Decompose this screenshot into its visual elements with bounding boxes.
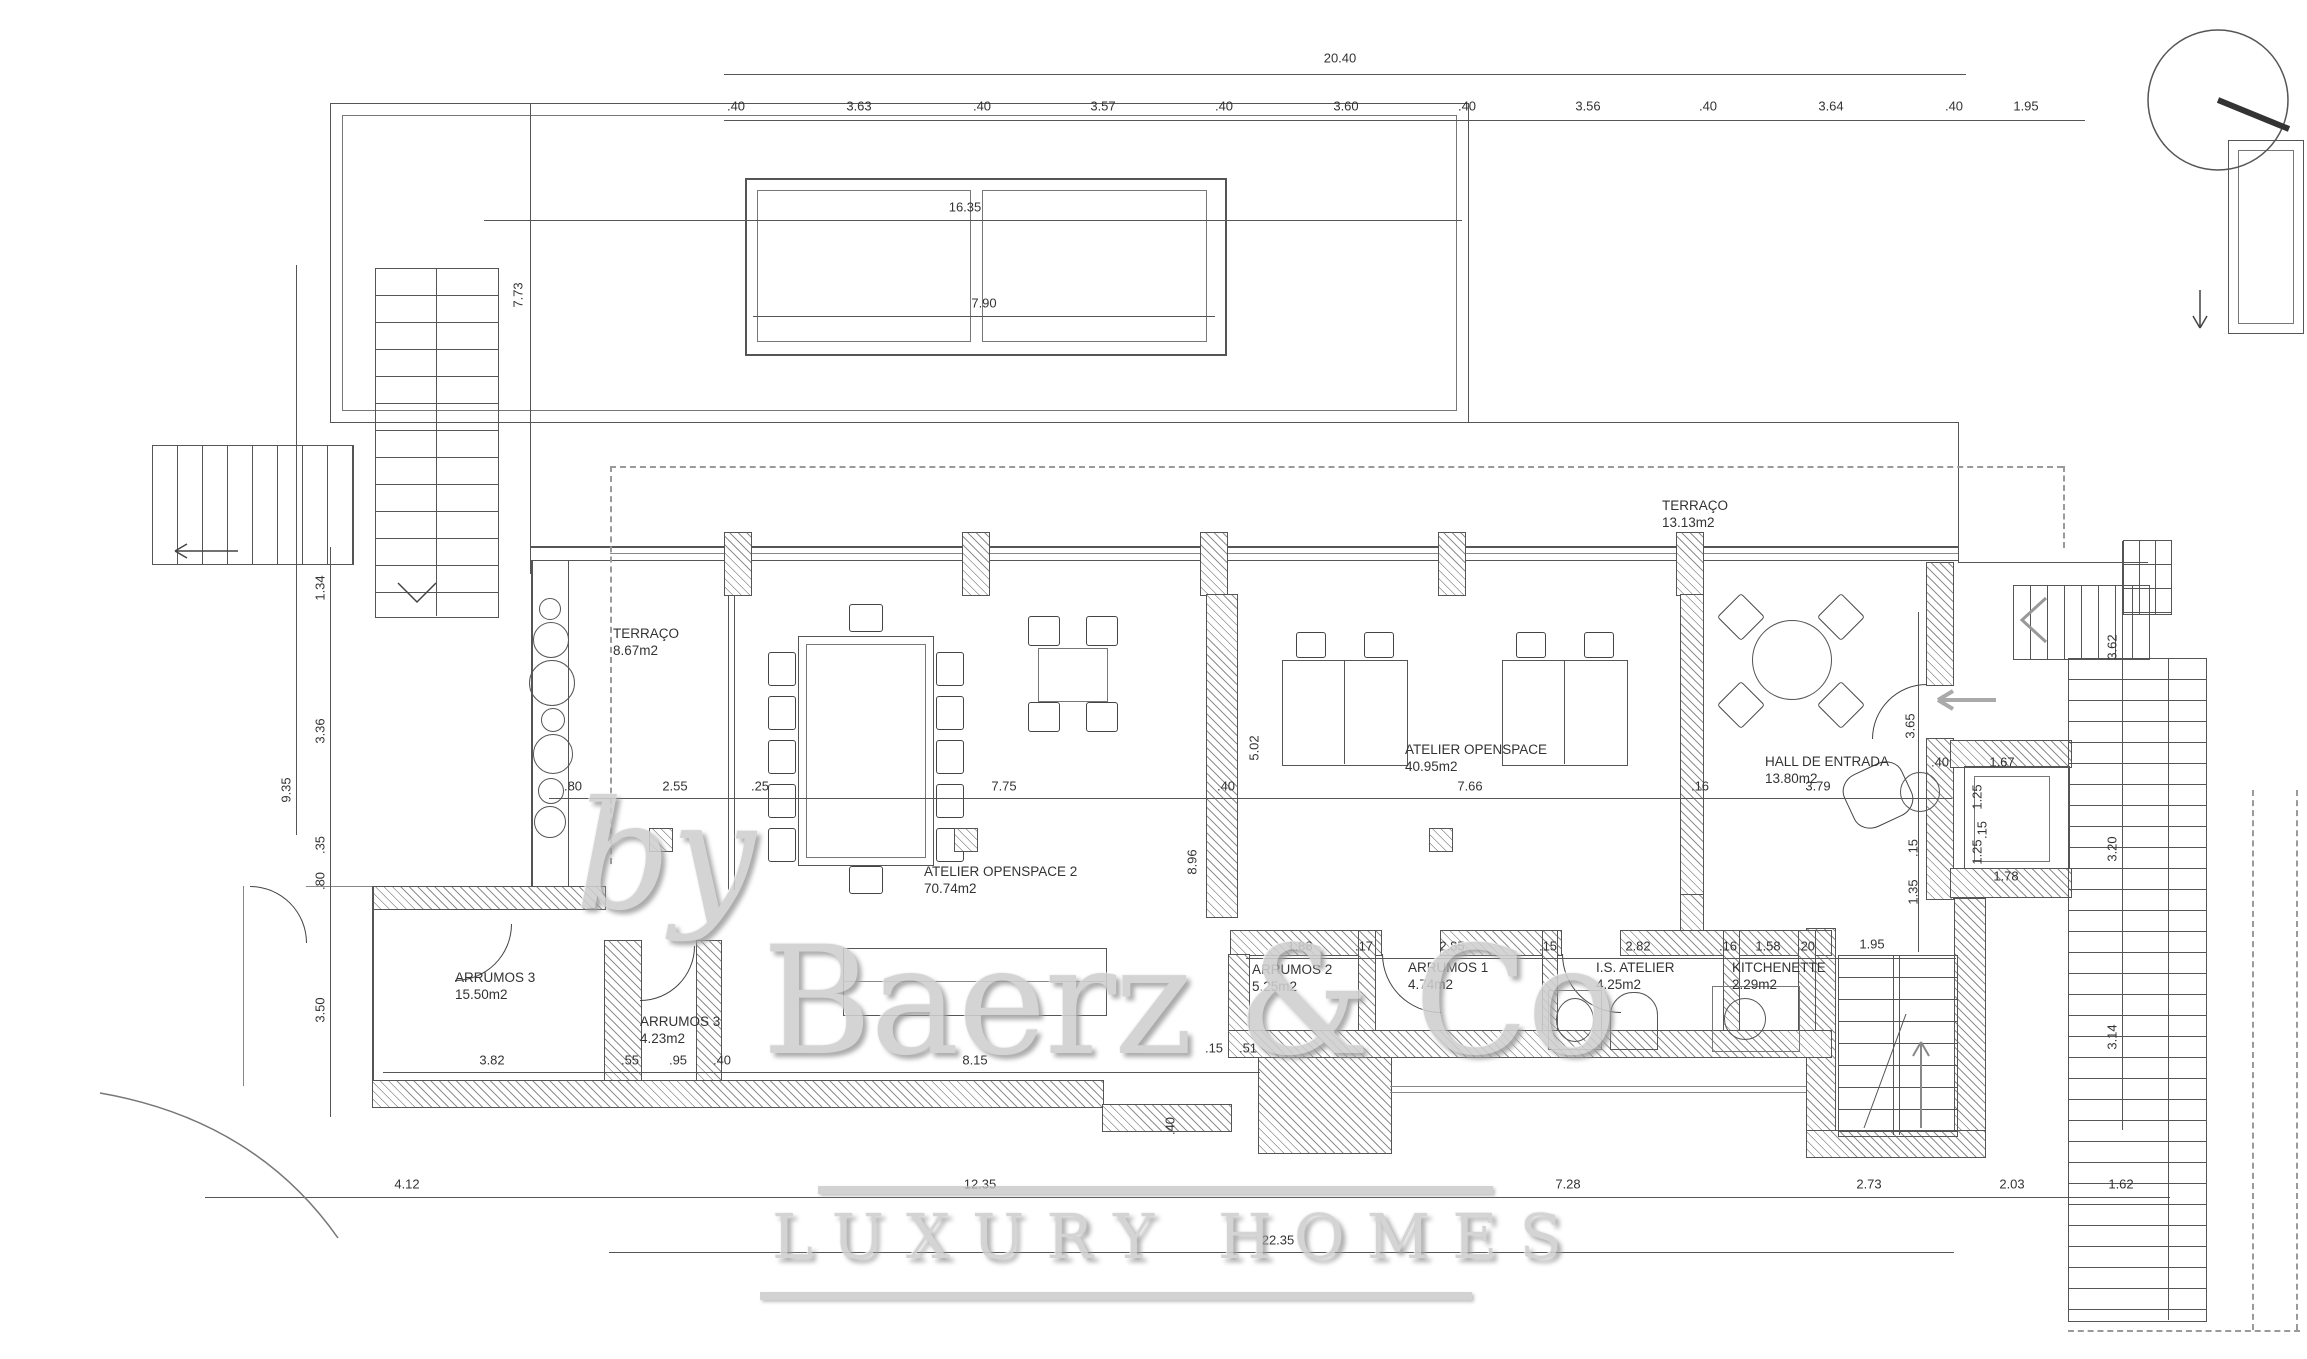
dim-label: 1.34	[314, 575, 327, 600]
dim-label: 8.96	[1186, 849, 1199, 874]
dim-label: .80	[314, 872, 327, 890]
dim-label: 3.50	[314, 997, 327, 1022]
watermark-rule-bottom	[760, 1292, 1472, 1300]
dim-label: .40	[1931, 756, 1949, 769]
room-area: 40.95m2	[1405, 759, 1547, 776]
dim-label: .16	[1719, 940, 1737, 953]
room-label-hall-entrada: HALL DE ENTRADA 13.80m2	[1765, 754, 1889, 788]
down-arrow-right	[2193, 290, 2207, 328]
room-name: ATELIER OPENSPACE 2	[924, 864, 1077, 881]
dim-label: .40	[1458, 100, 1476, 113]
dim-label: 3.60	[1333, 100, 1358, 113]
watermark-rule-top	[818, 1186, 1493, 1194]
dim-label: 1.78	[1993, 870, 2018, 883]
room-area: 2.29m2	[1732, 977, 1826, 994]
dim-label: 1.67	[1989, 756, 2014, 769]
dim-label: .35	[314, 836, 327, 854]
dim-label: .15	[1976, 821, 1989, 839]
entry-arrow	[1938, 691, 1996, 709]
room-name: TERRAÇO	[1662, 498, 1728, 515]
dim-label: 7.75	[991, 780, 1016, 793]
room-label-terraco-2: TERRAÇO 13.13m2	[1662, 498, 1728, 532]
compass-needle	[2218, 100, 2289, 129]
dim-label: 9.35	[280, 777, 293, 802]
dim-label: 5.02	[1248, 735, 1261, 760]
room-label-arrumos3-small: ARRUMOS 3 4.23m2	[640, 1014, 720, 1048]
plan-annotations	[0, 0, 2307, 1359]
dim-label: 2.82	[1625, 940, 1650, 953]
dim-label: 4.12	[394, 1178, 419, 1191]
dim-label: 3.20	[2106, 836, 2119, 861]
room-label-terraco-1: TERRAÇO 8.67m2	[613, 626, 679, 660]
stair-down-arrow	[398, 583, 436, 602]
dim-label: .40	[973, 100, 991, 113]
stair-up-arrow	[1913, 1042, 1929, 1128]
dim-label: 3.14	[2106, 1024, 2119, 1049]
dim-label: 20.40	[1324, 52, 1357, 65]
room-label-arrumos3-big: ARRUMOS 3 15.50m2	[455, 970, 535, 1004]
dim-label: .15	[1907, 839, 1920, 857]
dim-label: .40	[1945, 100, 1963, 113]
dim-label: 7.90	[971, 297, 996, 310]
room-name: HALL DE ENTRADA	[1765, 754, 1889, 771]
dim-label: .40	[1699, 100, 1717, 113]
dim-label: 7.73	[512, 282, 525, 307]
room-label-atelier-openspace: ATELIER OPENSPACE 40.95m2	[1405, 742, 1547, 776]
room-name: KITCHENETTE	[1732, 960, 1826, 977]
room-area: 13.80m2	[1765, 771, 1889, 788]
dim-label: 3.65	[1904, 713, 1917, 738]
room-name: ARRUMOS 3	[455, 970, 535, 987]
dim-label: 16.35	[949, 201, 982, 214]
dim-label: 1.58	[1755, 940, 1780, 953]
watermark-brand: Baerz & Co	[762, 915, 1615, 1089]
room-area: 4.23m2	[640, 1031, 720, 1048]
dim-label: 7.66	[1457, 780, 1482, 793]
dim-label: .95	[669, 1054, 687, 1067]
dim-label: .20	[1797, 940, 1815, 953]
dim-label: 3.64	[1818, 100, 1843, 113]
dim-label: 1.25	[1971, 839, 1984, 864]
room-name: ARRUMOS 3	[640, 1014, 720, 1031]
dim-label: 1.95	[2013, 100, 2038, 113]
room-name: ATELIER OPENSPACE	[1405, 742, 1547, 759]
dim-label: .40	[727, 100, 745, 113]
terrain-curve	[100, 1093, 338, 1238]
dim-label: 3.56	[1575, 100, 1600, 113]
dim-label: .16	[1691, 780, 1709, 793]
dim-label: .40	[1217, 780, 1235, 793]
dim-label: 3.82	[479, 1054, 504, 1067]
room-area: 13.13m2	[1662, 515, 1728, 532]
watermark-tagline: LUXURY HOMES	[772, 1200, 1584, 1273]
dim-label: .40	[1215, 100, 1233, 113]
stair-cut-line	[1864, 1014, 1906, 1128]
dim-label: .40	[713, 1054, 731, 1067]
dim-label: 1.25	[1971, 784, 1984, 809]
stair-chevron-arrow	[2022, 598, 2046, 642]
room-area: 15.50m2	[455, 987, 535, 1004]
room-label-kitchenette: KITCHENETTE 2.29m2	[1732, 960, 1826, 994]
dim-label: 1.95	[1859, 938, 1884, 951]
dim-label: 3.63	[846, 100, 871, 113]
floor-plan-canvas: 20.40 .40 3.63 .40 3.57 .40 3.60 .40 3.5…	[0, 0, 2307, 1359]
dim-label: 3.62	[2106, 634, 2119, 659]
dim-label: 3.36	[314, 718, 327, 743]
dim-label: .55	[621, 1054, 639, 1067]
room-label-atelier-openspace-2: ATELIER OPENSPACE 2 70.74m2	[924, 864, 1077, 898]
dim-label: 2.03	[1999, 1178, 2024, 1191]
dim-label: 1.35	[1907, 879, 1920, 904]
room-area: 8.67m2	[613, 643, 679, 660]
left-stair-arrow	[175, 544, 238, 558]
dim-label: 2.73	[1856, 1178, 1881, 1191]
room-name: TERRAÇO	[613, 626, 679, 643]
watermark-by: by	[575, 770, 756, 944]
dim-label: 1.62	[2108, 1178, 2133, 1191]
dim-label: 3.57	[1090, 100, 1115, 113]
room-area: 70.74m2	[924, 881, 1077, 898]
dim-label: 7.28	[1555, 1178, 1580, 1191]
dim-label: .40	[1164, 1117, 1177, 1135]
